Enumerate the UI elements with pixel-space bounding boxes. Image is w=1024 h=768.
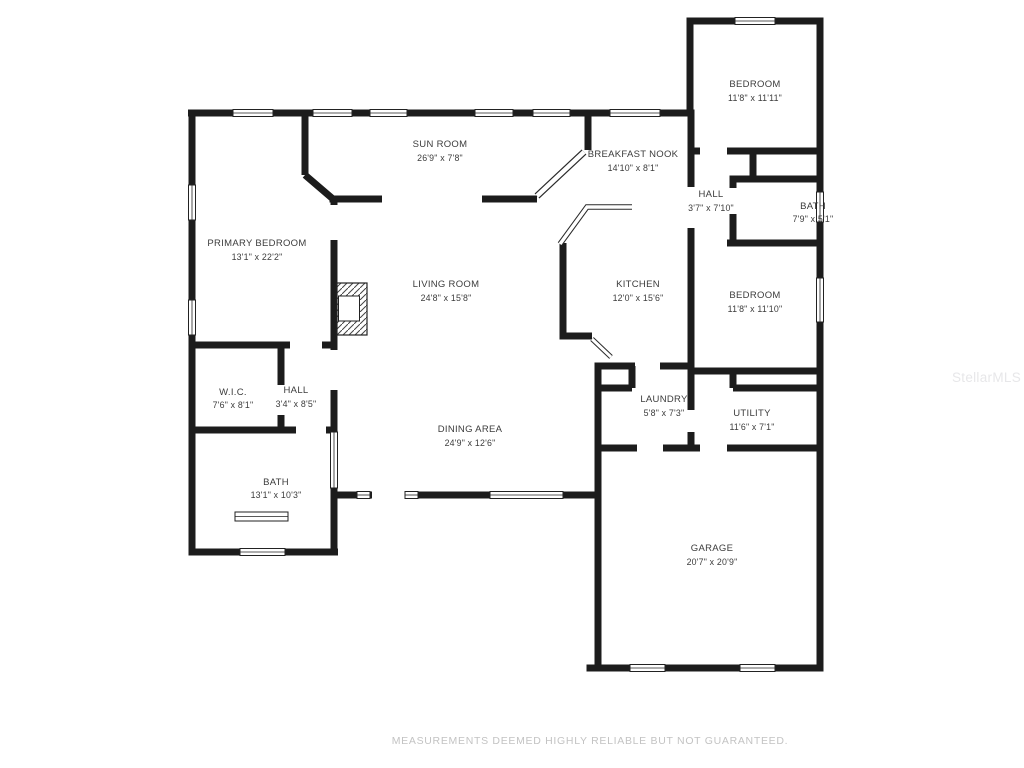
window bbox=[475, 110, 513, 117]
room-dims-primary-bedroom: 13'1" x 22'2" bbox=[232, 252, 283, 262]
window bbox=[610, 110, 660, 117]
room-label-hall-lower: HALL bbox=[284, 385, 309, 396]
garage-door-panel bbox=[630, 665, 665, 672]
room-label-dining-area: DINING AREA bbox=[438, 424, 503, 435]
room-dims-garage: 20'7" x 20'9" bbox=[687, 557, 738, 567]
room-dims-hall-upper: 3'7" x 7'10" bbox=[688, 203, 734, 213]
room-dims-bath-upper: 7'9" x 5'1" bbox=[793, 214, 834, 224]
window bbox=[370, 110, 407, 117]
room-dims-hall-lower: 3'4" x 8'5" bbox=[276, 399, 317, 409]
watermark: StellarMLS bbox=[952, 370, 1021, 385]
room-dims-living-room: 24'8" x 15'8" bbox=[421, 293, 472, 303]
garage-door-panel bbox=[740, 665, 775, 672]
kitchen-counter bbox=[560, 207, 632, 244]
room-label-bedroom-1: BEDROOM bbox=[729, 79, 780, 90]
room-label-primary-bedroom: PRIMARY BEDROOM bbox=[207, 238, 306, 249]
window bbox=[817, 278, 824, 322]
window bbox=[490, 492, 563, 499]
room-dims-sun-room: 26'9" x 7'8" bbox=[417, 153, 463, 163]
floor-plan-drawing: BEDROOM 11'8" x 11'11" SUN ROOM 26'9" x … bbox=[0, 0, 1024, 768]
room-label-laundry: LAUNDRY bbox=[640, 394, 688, 405]
room-label-living-room: LIVING ROOM bbox=[413, 279, 480, 290]
room-label-garage: GARAGE bbox=[691, 543, 733, 554]
room-label-utility: UTILITY bbox=[733, 408, 771, 419]
bath-vanity bbox=[235, 512, 288, 521]
room-label-hall-upper: HALL bbox=[699, 189, 724, 200]
room-label-bedroom-2: BEDROOM bbox=[729, 290, 780, 301]
window bbox=[533, 110, 570, 117]
open-features bbox=[537, 152, 632, 357]
room-dims-breakfast-nook: 14'10" x 8'1" bbox=[608, 163, 659, 173]
room-label-sun-room: SUN ROOM bbox=[413, 139, 468, 150]
room-label-wic: W.I.C. bbox=[219, 387, 247, 398]
room-dims-bath-lower: 13'1" x 10'3" bbox=[251, 490, 302, 500]
window bbox=[735, 18, 775, 25]
room-label-kitchen: KITCHEN bbox=[616, 279, 660, 290]
room-dims-kitchen: 12'0" x 15'6" bbox=[613, 293, 664, 303]
window bbox=[233, 110, 273, 117]
room-label-breakfast-nook: BREAKFAST NOOK bbox=[588, 149, 679, 160]
window bbox=[240, 549, 285, 556]
room-dims-bedroom-1: 11'8" x 11'11" bbox=[728, 93, 782, 103]
room-label-bath-upper: BATH bbox=[800, 201, 826, 212]
floor-plan-page: BEDROOM 11'8" x 11'11" SUN ROOM 26'9" x … bbox=[0, 0, 1024, 768]
fireplace bbox=[337, 283, 367, 335]
window bbox=[189, 185, 196, 220]
window bbox=[357, 492, 370, 499]
room-dims-dining-area: 24'9" x 12'6" bbox=[445, 438, 496, 448]
window bbox=[405, 492, 418, 499]
room-dims-utility: 11'6" x 7'1" bbox=[729, 422, 774, 432]
footer-disclaimer: MEASUREMENTS DEEMED HIGHLY RELIABLE BUT … bbox=[392, 735, 789, 747]
pocket-door bbox=[331, 432, 338, 488]
window bbox=[313, 110, 352, 117]
room-dims-bedroom-2: 11'8" x 11'10" bbox=[728, 304, 783, 314]
room-dims-laundry: 5'8" x 7'3" bbox=[644, 408, 685, 418]
window bbox=[189, 300, 196, 335]
room-label-bath-lower: BATH bbox=[263, 477, 289, 488]
room-dims-wic: 7'6" x 8'1" bbox=[213, 400, 254, 410]
